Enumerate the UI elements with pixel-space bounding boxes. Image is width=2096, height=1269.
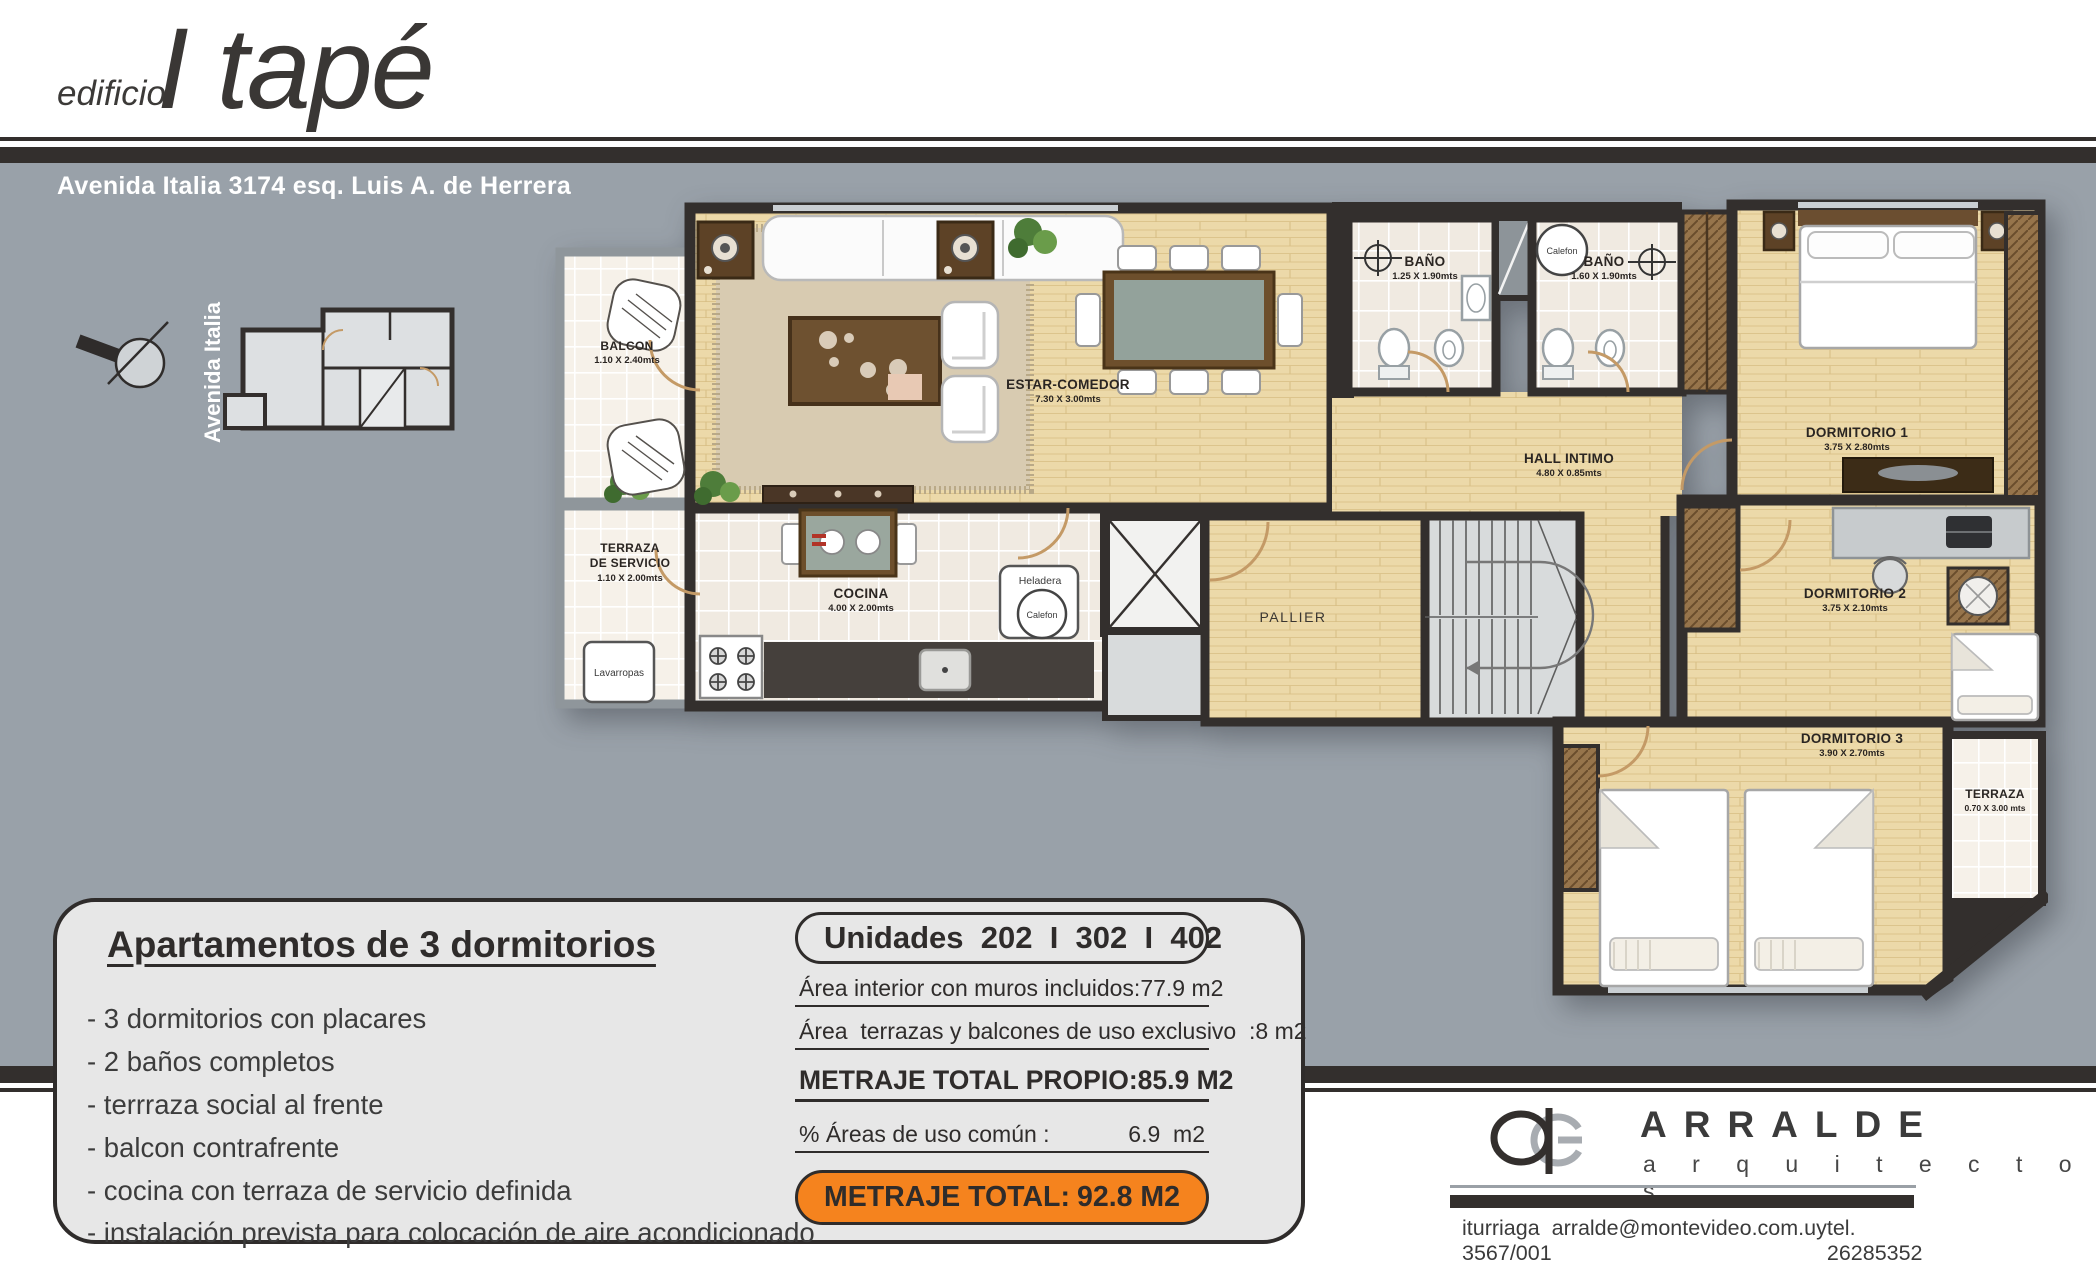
units-row-label: % Áreas de uso común : <box>799 1121 1050 1148</box>
label-cocina-dims: 4.00 X 2.00mts <box>828 603 894 614</box>
side-table-lamp <box>698 222 753 278</box>
units-row-label: Área interior con muros incluidos: <box>799 975 1140 1002</box>
bed-single <box>1952 634 2038 720</box>
closet-dorm3 <box>1562 746 1598 890</box>
units-row: % Áreas de uso común : 6.9 m2 <box>795 1110 1209 1153</box>
units-row-label: METRAJE TOTAL PROPIO: <box>799 1065 1138 1096</box>
dresser-tv <box>1843 458 1993 492</box>
toilet <box>1543 329 1573 367</box>
kitchen-table <box>782 510 916 576</box>
label-terraza-servicio-2: DE SERVICIO <box>590 556 670 570</box>
label-terraza-servicio-1: TERRAZA <box>600 541 659 555</box>
shower-box <box>1496 218 1532 298</box>
units-row-label: Área terrazas y balcones de uso exclusiv… <box>799 1018 1255 1045</box>
label-cocina: COCINA <box>833 586 888 601</box>
dresser-round <box>1948 568 2008 624</box>
contact-email: arralde@montevideo.com.uy <box>1552 1216 1827 1266</box>
units-row-value: 85.9 M2 <box>1138 1065 1234 1096</box>
stove <box>700 636 762 698</box>
label-terraza-dims: 0.70 X 3.00 mts <box>1965 803 2026 813</box>
label-bano1: BAÑO <box>1405 254 1446 269</box>
balcony-chair <box>604 416 687 497</box>
armchair <box>942 302 998 368</box>
street-label: Avenida Italia <box>200 301 225 443</box>
label-balcon-dims: 1.10 X 2.40mts <box>594 355 660 366</box>
key-plan-building <box>225 310 452 428</box>
label-bano2-dims: 1.60 X 1.90mts <box>1571 271 1637 282</box>
label-terraza-servicio-dims: 1.10 X 2.00mts <box>597 573 663 584</box>
header-thin-rule <box>0 137 2096 141</box>
feature-item: - balcon contrafrente <box>87 1127 815 1170</box>
toilet <box>1379 329 1409 367</box>
feature-item: - 2 baños completos <box>87 1041 815 1084</box>
sideboard <box>763 486 913 503</box>
label-hall-dims: 4.80 X 0.85mts <box>1536 468 1602 479</box>
firm-name: ARRALDE <box>1640 1104 1940 1146</box>
feature-item: - 3 dormitorios con placares <box>87 998 815 1041</box>
units-row-value: 77.9 m2 <box>1140 975 1223 1002</box>
bed-single <box>1745 790 1873 986</box>
north-arrow-icon <box>78 322 168 387</box>
label-terraza: TERRAZA <box>1965 787 2024 801</box>
fridge-label: Heladera <box>1019 575 1062 587</box>
info-panel: Apartamentos de 3 dormitorios - 3 dormit… <box>53 898 1305 1244</box>
washer-label: Lavarropas <box>594 668 644 679</box>
feature-list: - 3 dormitorios con placares - 2 baños c… <box>87 998 815 1255</box>
elevator <box>1105 516 1205 632</box>
feature-item: - cocina con terraza de servicio definid… <box>87 1170 815 1213</box>
label-dorm3-dims: 3.90 X 2.70mts <box>1819 748 1885 759</box>
elevator-lobby <box>1105 632 1205 718</box>
label-pallier: PALLIER <box>1259 609 1326 625</box>
closet-dorm2 <box>1682 506 1738 630</box>
header-thick-rule <box>0 147 2096 163</box>
units-row-total-propio: METRAJE TOTAL PROPIO: 85.9 M2 <box>795 1054 1209 1102</box>
side-table-lamp <box>938 222 993 278</box>
feature-item: - instalación prevista para colocación d… <box>87 1212 815 1255</box>
brochure-page: edificio I tapé Avenida Italia 3174 esq.… <box>0 0 2096 1269</box>
metraje-total-value: 92.8 M2 <box>1077 1181 1180 1214</box>
contact-row: iturriaga 3567/001 arralde@montevideo.co… <box>1462 1216 1904 1266</box>
units-row: Área terrazas y balcones de uso exclusiv… <box>795 1007 1209 1050</box>
info-panel-title: Apartamentos de 3 dormitorios <box>107 924 656 966</box>
units-row-value: 8 m2 <box>1255 1018 1306 1045</box>
fridge: Heladera Calefon <box>1000 566 1078 638</box>
bed-single <box>1600 790 1728 986</box>
label-dorm3: DORMITORIO 3 <box>1801 731 1904 746</box>
bidet <box>1596 330 1624 366</box>
label-dorm2: DORMITORIO 2 <box>1804 586 1906 601</box>
label-hall: HALL INTIMO <box>1524 451 1614 466</box>
nightstand <box>1764 212 1794 250</box>
units-row-value: 6.9 m2 <box>1128 1121 1205 1148</box>
coffee-table <box>790 318 940 404</box>
contact-phone: tel. 26285352 <box>1827 1216 1923 1266</box>
units-row: Área interior con muros incluidos: 77.9 … <box>795 964 1209 1007</box>
label-estar: ESTAR-COMEDOR <box>1006 377 1130 392</box>
label-bano2: BAÑO <box>1584 254 1625 269</box>
closet-dorm1-left <box>1682 212 1732 392</box>
water-heater-label: Calefon <box>1546 246 1577 256</box>
arralde-logo-icon <box>1488 1098 1623 1190</box>
contact-address: iturriaga 3567/001 <box>1462 1216 1552 1266</box>
floor-plan: Heladera Calefon Lavarropas Calefon <box>548 190 2048 1002</box>
building-logo: I tapé <box>157 12 433 127</box>
site-key-plan: Avenida Italia <box>60 300 480 452</box>
bidet <box>1435 330 1463 366</box>
wardrobe-dorm1 <box>2006 213 2040 497</box>
brand-prefix: edificio <box>57 74 166 114</box>
sink <box>1462 276 1490 320</box>
label-balcon: BALCON <box>600 339 653 353</box>
label-dorm1: DORMITORIO 1 <box>1806 425 1909 440</box>
metraje-total-label: METRAJE TOTAL: <box>824 1181 1070 1214</box>
feature-item: - terrraza social al frente <box>87 1084 815 1127</box>
bed-double <box>1798 210 1978 348</box>
armchair <box>942 376 998 442</box>
metraje-total-pill: METRAJE TOTAL: 92.8 M2 <box>795 1170 1209 1225</box>
units-panel: Unidades 202 I 302 I 402 Área interior c… <box>795 912 1209 1225</box>
label-estar-dims: 7.30 X 3.00mts <box>1035 394 1101 405</box>
label-dorm1-dims: 3.75 X 2.80mts <box>1824 442 1890 453</box>
label-bano1-dims: 1.25 X 1.90mts <box>1392 271 1458 282</box>
footer-dark-line <box>1450 1195 1914 1208</box>
stairs <box>1425 516 1593 722</box>
footer-gray-line <box>1450 1185 1916 1188</box>
label-dorm2-dims: 3.75 X 2.10mts <box>1822 603 1888 614</box>
building-address: Avenida Italia 3174 esq. Luis A. de Herr… <box>57 172 571 201</box>
kitchen-counter <box>764 642 1094 698</box>
washing-machine: Lavarropas <box>584 642 654 702</box>
units-title: Unidades 202 I 302 I 402 <box>795 912 1209 964</box>
water-heater-label: Calefon <box>1026 610 1057 620</box>
